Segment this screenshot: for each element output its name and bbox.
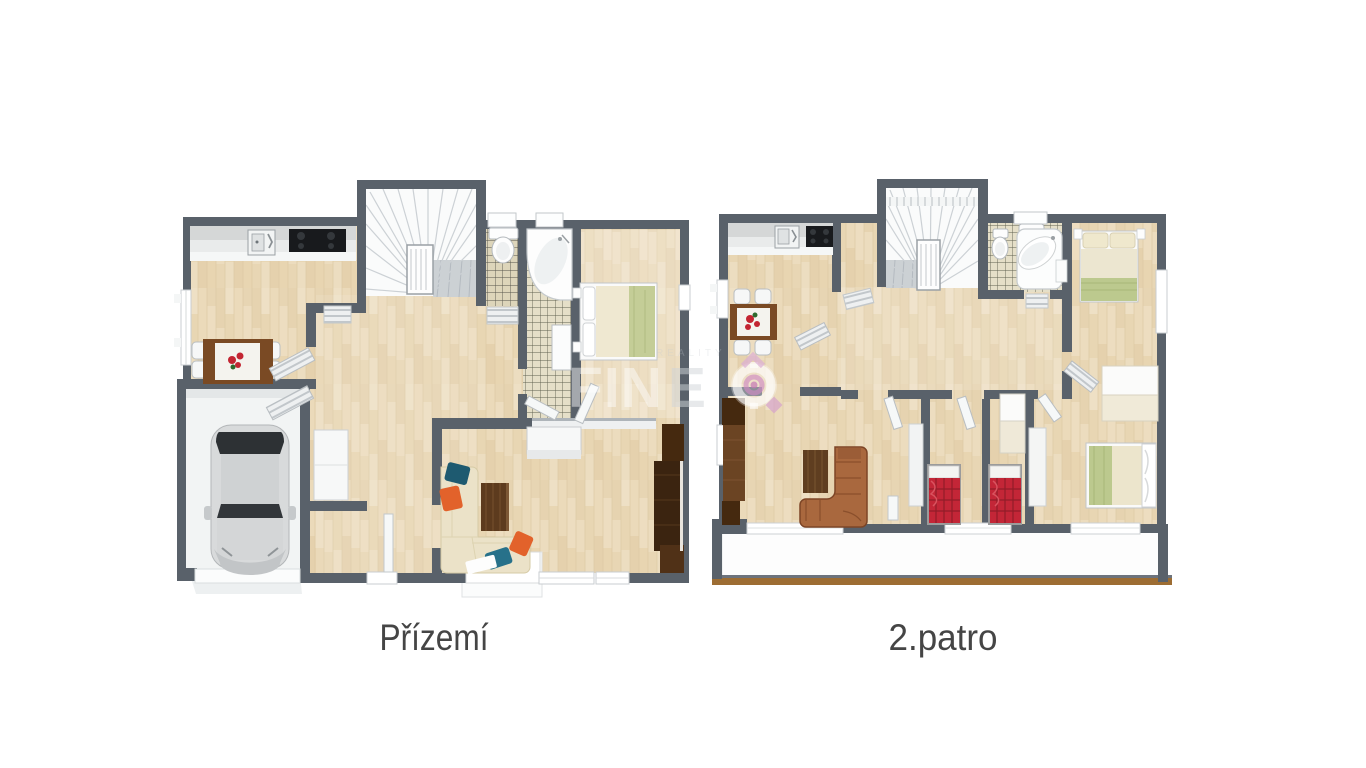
svg-text:E: E	[668, 356, 706, 420]
svg-text:2.patro: 2.patro	[889, 617, 998, 658]
svg-text:Přízemí: Přízemí	[380, 617, 490, 658]
svg-text:FIN: FIN	[568, 356, 663, 420]
